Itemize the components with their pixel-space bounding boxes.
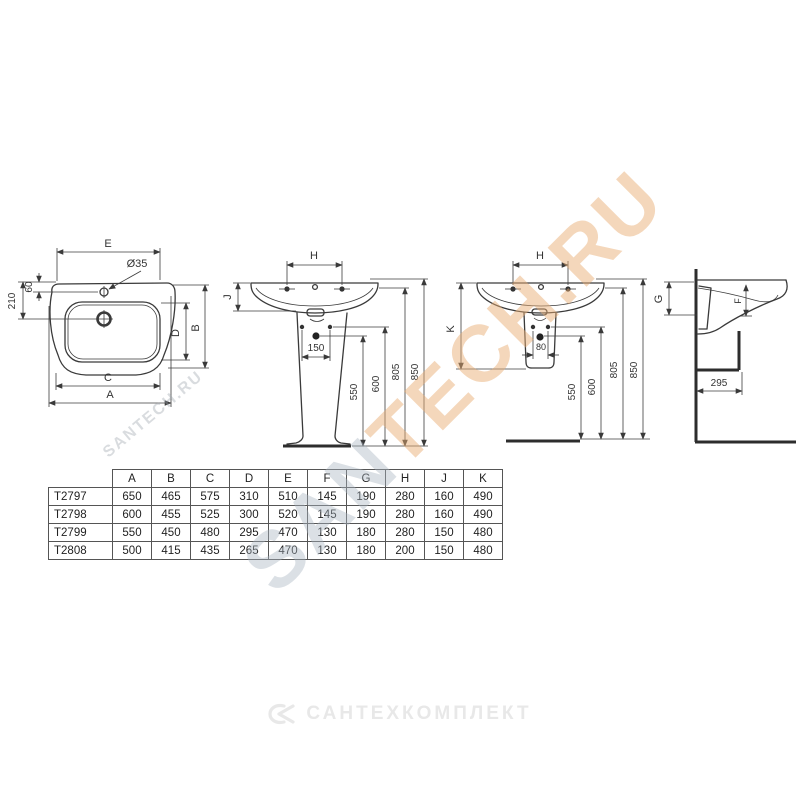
dim-label-c: C xyxy=(104,372,112,384)
water-inlet xyxy=(536,333,543,340)
vendor-logo: САНТЕХКОМПЛЕКТ xyxy=(0,703,800,725)
model-label: T2797 xyxy=(49,488,113,506)
column-header-D: D xyxy=(230,470,269,488)
table-cell: 435 xyxy=(191,542,230,560)
table-cell: 470 xyxy=(269,524,308,542)
washbasin-spec-sheet: SANTECH.RU E Ø35 xyxy=(0,0,800,800)
basin-outline xyxy=(50,283,175,375)
dimensions-table-body: T2797650465575310510145190280160490T2798… xyxy=(49,488,503,560)
column-header-A: A xyxy=(113,470,152,488)
table-cell: 265 xyxy=(230,542,269,560)
dim-label-805: 805 xyxy=(391,363,402,380)
table-cell: 490 xyxy=(464,506,503,524)
table-cell: 550 xyxy=(113,524,152,542)
bolt-hole xyxy=(328,325,332,329)
table-cell: 415 xyxy=(152,542,191,560)
table-cell: 300 xyxy=(230,506,269,524)
table-cell: 130 xyxy=(308,524,347,542)
dim-label-850: 850 xyxy=(629,361,640,378)
dim-label-295: 295 xyxy=(711,378,728,389)
dim-label-b: B xyxy=(190,324,202,331)
table-row-T2798: T2798600455525300520145190280160490 xyxy=(49,506,503,524)
dim-label-dia35: Ø35 xyxy=(127,258,148,270)
table-cell: 200 xyxy=(386,542,425,560)
table-cell: 145 xyxy=(308,488,347,506)
column-header-B: B xyxy=(152,470,191,488)
table-row-T2808: T2808500415435265470130180200150480 xyxy=(49,542,503,560)
table-cell: 130 xyxy=(308,542,347,560)
vendor-logo-text: САНТЕХКОМПЛЕКТ xyxy=(306,703,531,725)
semi-pedestal xyxy=(524,313,531,368)
dim-label-550: 550 xyxy=(349,383,360,400)
table-row-T2797: T2797650465575310510145190280160490 xyxy=(49,488,503,506)
santehkomplekt-logo-icon xyxy=(268,703,296,725)
column-header-C: C xyxy=(191,470,230,488)
dimensions-table: ABCDEFGHJK T2797650465575310510145190280… xyxy=(48,469,503,560)
dim-label-80: 80 xyxy=(536,342,546,352)
bolt-hole xyxy=(300,325,304,329)
column-header-F: F xyxy=(308,470,347,488)
overflow-slot xyxy=(532,309,547,315)
table-row-T2799: T2799550450480295470130180280150480 xyxy=(49,524,503,542)
wall-bracket xyxy=(699,286,711,329)
table-cell: 510 xyxy=(269,488,308,506)
table-cell: 310 xyxy=(230,488,269,506)
dim-label-h: H xyxy=(536,250,544,262)
pedestal xyxy=(287,313,303,444)
table-cell: 600 xyxy=(113,506,152,524)
table-cell: 180 xyxy=(347,524,386,542)
model-label: T2799 xyxy=(49,524,113,542)
dim-label-850: 850 xyxy=(410,363,421,380)
view-top: E Ø35 60 210 B D xyxy=(7,238,209,407)
table-cell: 280 xyxy=(386,524,425,542)
model-label: T2798 xyxy=(49,506,113,524)
dim-label-f: F xyxy=(733,298,743,304)
table-cell: 295 xyxy=(230,524,269,542)
dim-label-600: 600 xyxy=(371,375,382,392)
table-corner-cell xyxy=(49,470,113,488)
table-cell: 145 xyxy=(308,506,347,524)
table-cell: 490 xyxy=(464,488,503,506)
technical-drawing: E Ø35 60 210 B D xyxy=(0,0,800,460)
table-cell: 190 xyxy=(347,506,386,524)
dim-label-k: K xyxy=(445,325,457,333)
column-header-J: J xyxy=(425,470,464,488)
table-cell: 160 xyxy=(425,506,464,524)
table-cell: 575 xyxy=(191,488,230,506)
table-cell: 480 xyxy=(464,542,503,560)
column-header-K: K xyxy=(464,470,503,488)
dim-label-j: J xyxy=(222,294,234,300)
dim-label-600: 600 xyxy=(587,378,598,395)
view-front-pedestal: H J 150 550 600 805 850 xyxy=(222,250,428,446)
dim-label-h: H xyxy=(310,250,318,262)
tap-hole xyxy=(313,285,318,290)
table-cell: 480 xyxy=(464,524,503,542)
view-side: F G 295 xyxy=(653,269,796,442)
basin-bowl xyxy=(65,302,160,362)
table-cell: 520 xyxy=(269,506,308,524)
table-cell: 280 xyxy=(386,506,425,524)
dim-label-e: E xyxy=(104,238,111,250)
table-cell: 525 xyxy=(191,506,230,524)
table-cell: 190 xyxy=(347,488,386,506)
dim-label-210: 210 xyxy=(7,292,18,309)
dim-label-d: D xyxy=(170,329,182,337)
table-cell: 150 xyxy=(425,542,464,560)
table-cell: 280 xyxy=(386,488,425,506)
column-header-H: H xyxy=(386,470,425,488)
table-cell: 500 xyxy=(113,542,152,560)
table-cell: 480 xyxy=(191,524,230,542)
model-label: T2808 xyxy=(49,542,113,560)
dim-label-g: G xyxy=(653,295,665,304)
column-header-G: G xyxy=(347,470,386,488)
table-cell: 455 xyxy=(152,506,191,524)
table-cell: 180 xyxy=(347,542,386,560)
table-cell: 150 xyxy=(425,524,464,542)
dim-label-a: A xyxy=(106,389,114,401)
dim-label-60: 60 xyxy=(24,281,35,293)
table-cell: 465 xyxy=(152,488,191,506)
table-cell: 650 xyxy=(113,488,152,506)
table-cell: 470 xyxy=(269,542,308,560)
bolt-hole xyxy=(531,325,535,329)
column-header-E: E xyxy=(269,470,308,488)
basin-bowl-lip xyxy=(68,305,157,359)
water-inlet xyxy=(312,332,319,339)
dim-label-150: 150 xyxy=(308,343,325,354)
tap-hole xyxy=(539,285,544,290)
dim-label-550: 550 xyxy=(567,383,578,400)
table-cell: 160 xyxy=(425,488,464,506)
table-cell: 450 xyxy=(152,524,191,542)
view-front-semipedestal: H K 80 550 600 805 xyxy=(445,250,650,441)
bolt-hole xyxy=(546,325,550,329)
dim-label-805: 805 xyxy=(609,361,620,378)
dimensions-table-head: ABCDEFGHJK xyxy=(49,470,503,488)
